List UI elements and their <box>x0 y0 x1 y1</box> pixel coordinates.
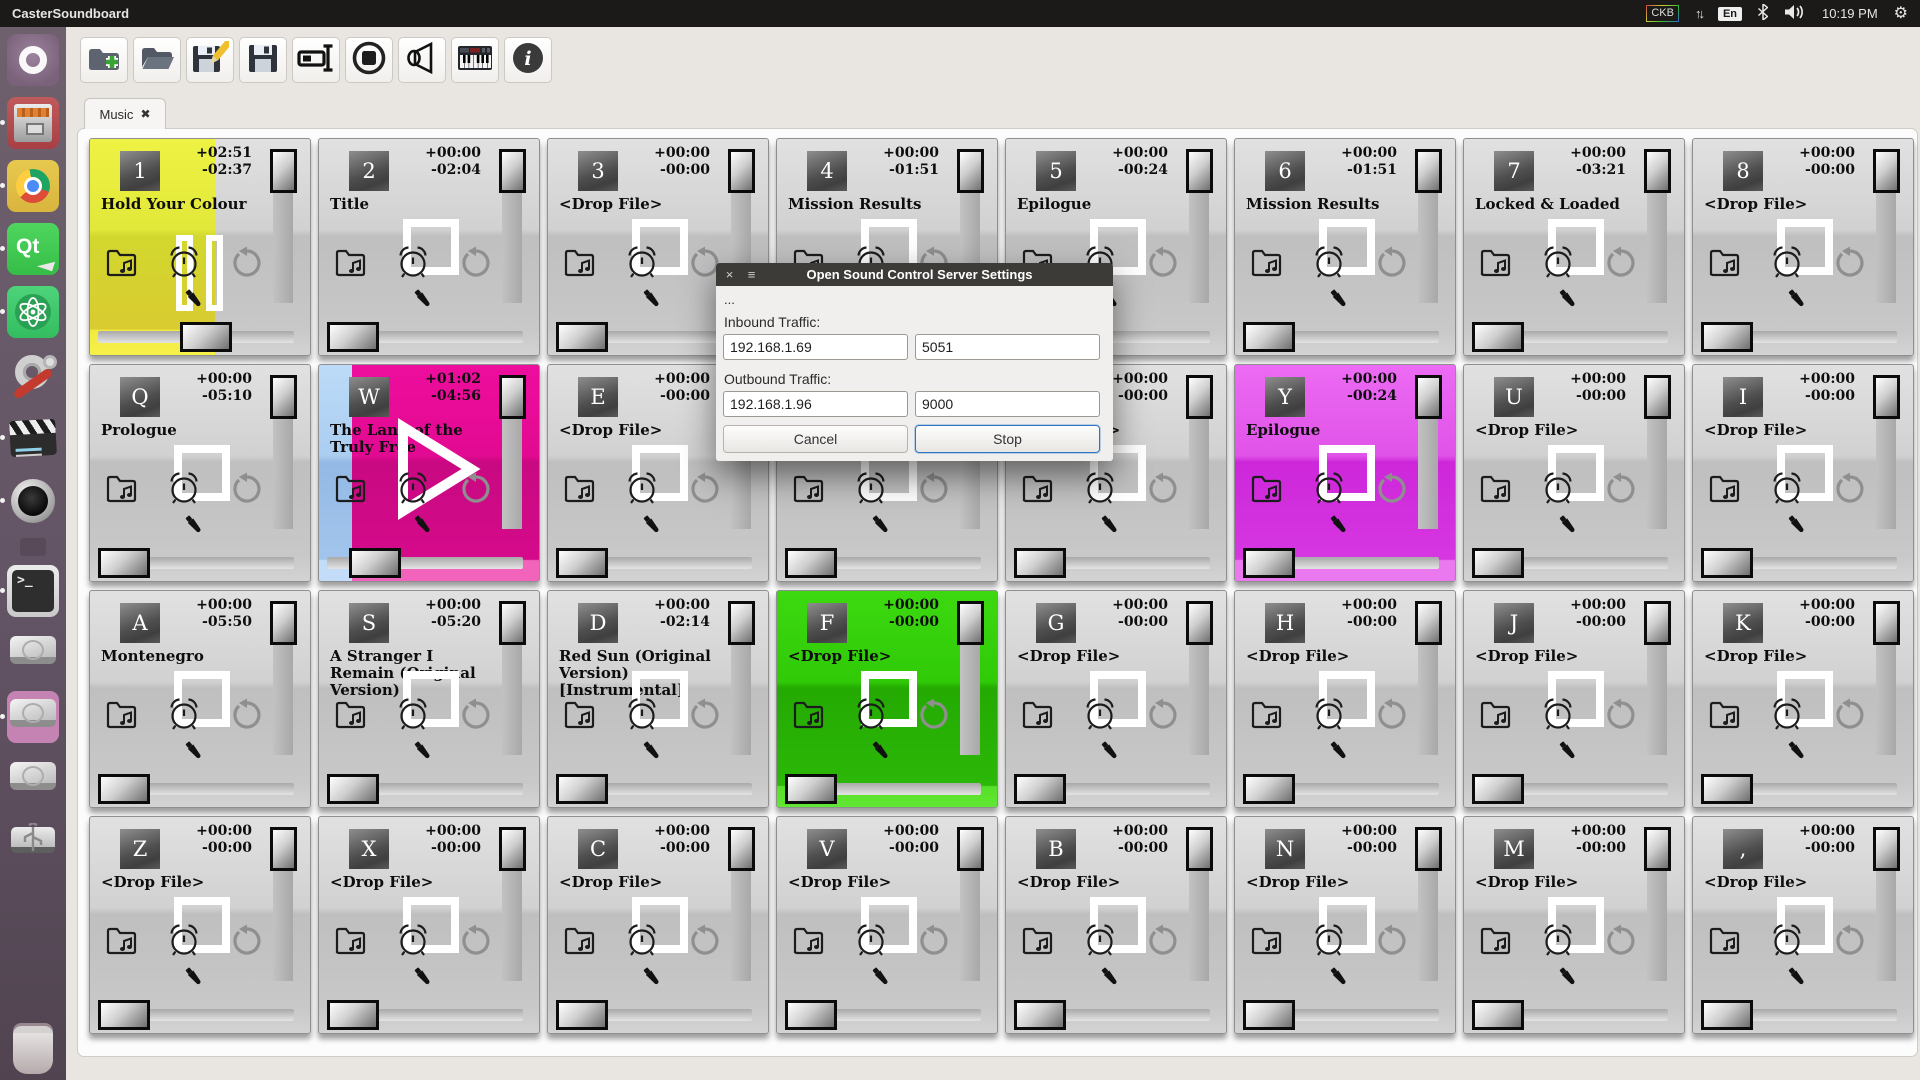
unity-launcher: Qt>_ <box>0 27 66 1080</box>
loop-icon[interactable] <box>1831 923 1867 963</box>
open-audio-file-icon[interactable] <box>1707 245 1743 283</box>
pad-time: +00:00-01:51 <box>1341 145 1397 179</box>
volume-slider-handle[interactable] <box>1644 149 1671 193</box>
pad-time: +00:00-00:00 <box>1570 597 1626 631</box>
launcher-terminal-icon[interactable]: >_ <box>7 565 59 617</box>
color-picker-icon[interactable] <box>411 287 437 317</box>
sound-pad[interactable]: Y +00:00-00:24 Epilogue <box>1234 364 1456 582</box>
loop-icon[interactable] <box>686 923 722 963</box>
tab-music[interactable]: Music ✖ <box>84 98 166 129</box>
timer-clock-icon[interactable] <box>164 919 204 963</box>
seek-slider-handle[interactable] <box>1701 1000 1753 1030</box>
pad-key-label: Y <box>1265 377 1305 417</box>
volume-slider-handle[interactable] <box>1415 601 1442 645</box>
loop-icon[interactable] <box>915 471 951 511</box>
volume-slider-handle[interactable] <box>1186 827 1213 871</box>
loop-icon[interactable] <box>1831 471 1867 511</box>
timer-clock-icon[interactable] <box>622 467 662 511</box>
launcher-system-tools-icon[interactable] <box>7 349 59 401</box>
volume-slider-handle[interactable] <box>1873 149 1900 193</box>
color-picker-icon[interactable] <box>182 965 208 995</box>
loop-icon[interactable] <box>1602 923 1638 963</box>
seek-slider-handle[interactable] <box>1014 548 1066 578</box>
loop-icon[interactable] <box>228 697 264 737</box>
loop-icon[interactable] <box>1373 245 1409 285</box>
loop-icon[interactable] <box>1602 471 1638 511</box>
volume-slider-handle[interactable] <box>1186 375 1213 419</box>
loop-icon[interactable] <box>1831 245 1867 285</box>
timer-clock-icon[interactable] <box>1538 241 1578 285</box>
pad-track-title: <Drop File> <box>559 422 719 439</box>
color-picker-icon[interactable] <box>1556 513 1582 543</box>
timer-clock-icon[interactable] <box>1767 919 1807 963</box>
volume-slider-handle[interactable] <box>1644 827 1671 871</box>
pad-time: +00:00-00:00 <box>883 823 939 857</box>
timer-clock-icon[interactable] <box>851 693 891 737</box>
open-audio-file-icon[interactable] <box>333 471 369 509</box>
launcher-mini-indicator-icon[interactable] <box>20 538 46 556</box>
pad-key-label: G <box>1036 603 1076 643</box>
launcher-video-editor-icon[interactable] <box>7 412 59 464</box>
new-soundboard-icon <box>87 43 121 78</box>
pad-track-title: <Drop File> <box>1475 648 1635 665</box>
color-picker-icon[interactable] <box>869 739 895 769</box>
sound-pad[interactable]: D +00:00-02:14 Red Sun (Original Version… <box>547 590 769 808</box>
save-soundboard-button[interactable] <box>239 37 287 83</box>
seek-slider-handle[interactable] <box>1243 322 1295 352</box>
volume-slider-handle[interactable] <box>499 827 526 871</box>
seek-slider-handle[interactable] <box>785 1000 837 1030</box>
color-picker-icon[interactable] <box>1327 287 1353 317</box>
timer-clock-icon[interactable] <box>1538 919 1578 963</box>
pad-track-title: <Drop File> <box>1704 196 1864 213</box>
open-audio-file-icon[interactable] <box>791 471 827 509</box>
open-audio-file-icon[interactable] <box>1249 245 1285 283</box>
sound-pad[interactable]: W +01:02-04:56 The Land of the Truly Fre… <box>318 364 540 582</box>
open-audio-file-icon[interactable] <box>104 471 140 509</box>
sound-pad[interactable]: B +00:00-00:00 <Drop File> <box>1005 816 1227 1034</box>
open-audio-file-icon[interactable] <box>333 697 369 735</box>
pad-key-label: Z <box>120 829 160 869</box>
sound-pad[interactable]: N +00:00-00:00 <Drop File> <box>1234 816 1456 1034</box>
seek-slider-handle[interactable] <box>98 774 150 804</box>
loop-icon[interactable] <box>1144 245 1180 285</box>
open-audio-file-icon[interactable] <box>1249 471 1285 509</box>
seek-slider-handle[interactable] <box>349 548 401 578</box>
color-picker-icon[interactable] <box>1098 513 1124 543</box>
open-audio-file-icon[interactable] <box>1707 697 1743 735</box>
volume-slider-handle[interactable] <box>270 601 297 645</box>
timer-clock-icon[interactable] <box>164 467 204 511</box>
color-picker-icon[interactable] <box>1785 287 1811 317</box>
timer-clock-icon[interactable] <box>1309 919 1349 963</box>
color-picker-icon[interactable] <box>1785 513 1811 543</box>
launcher-trash-icon[interactable] <box>13 1026 53 1074</box>
timer-clock-icon[interactable] <box>1080 693 1120 737</box>
sound-pad[interactable]: V +00:00-00:00 <Drop File> <box>776 816 998 1034</box>
loop-icon[interactable] <box>915 923 951 963</box>
open-audio-file-icon[interactable] <box>333 245 369 283</box>
volume-slider-handle[interactable] <box>1873 601 1900 645</box>
seek-slider-handle[interactable] <box>1243 548 1295 578</box>
color-picker-icon[interactable] <box>182 513 208 543</box>
timer-clock-icon[interactable] <box>1767 241 1807 285</box>
seek-slider-handle[interactable] <box>98 1000 150 1030</box>
timer-clock-icon[interactable] <box>1767 467 1807 511</box>
color-picker-icon[interactable] <box>182 287 208 317</box>
volume-slider-handle[interactable] <box>1873 827 1900 871</box>
volume-slider-handle[interactable] <box>957 601 984 645</box>
pad-key-label: J <box>1494 603 1534 643</box>
bluetooth-icon[interactable] <box>1758 4 1768 23</box>
pad-track-title: <Drop File> <box>1704 422 1864 439</box>
loop-icon[interactable] <box>686 697 722 737</box>
color-picker-icon[interactable] <box>1785 965 1811 995</box>
open-audio-file-icon[interactable] <box>791 697 827 735</box>
volume-slider-handle[interactable] <box>957 149 984 193</box>
open-audio-file-icon[interactable] <box>1478 245 1514 283</box>
seek-slider-handle[interactable] <box>556 1000 608 1030</box>
stop-all-sounds-icon <box>351 40 387 81</box>
timer-clock-icon[interactable] <box>393 467 433 511</box>
pad-key-label: 4 <box>807 151 847 191</box>
stop-button[interactable]: Stop <box>915 425 1100 453</box>
pad-track-title: Montenegro <box>101 648 261 665</box>
loop-icon[interactable] <box>228 471 264 511</box>
volume-slider-handle[interactable] <box>1415 149 1442 193</box>
volume-slider-handle[interactable] <box>499 149 526 193</box>
timer-clock-icon[interactable] <box>164 241 204 285</box>
open-audio-file-icon[interactable] <box>562 923 598 961</box>
open-audio-file-icon[interactable] <box>1020 697 1056 735</box>
keyboard-layout-indicator[interactable]: En <box>1718 7 1742 21</box>
color-picker-icon[interactable] <box>869 965 895 995</box>
pad-track-title: Title <box>330 196 490 213</box>
timer-clock-icon[interactable] <box>1309 467 1349 511</box>
color-picker-icon[interactable] <box>1785 739 1811 769</box>
indicator-tray: CKB ↑↓ En 10:19 PM ⚙ <box>1646 4 1908 23</box>
launcher-hard-drive-1-icon[interactable] <box>7 628 59 680</box>
timer-clock-icon[interactable] <box>1538 467 1578 511</box>
new-soundboard-button[interactable] <box>80 37 128 83</box>
launcher-qt-creator-icon[interactable]: Qt <box>7 223 59 275</box>
timer-clock-icon[interactable] <box>622 693 662 737</box>
rename-board-icon <box>297 43 335 78</box>
pad-key-label: 1 <box>120 151 160 191</box>
pad-track-title: Epilogue <box>1017 196 1177 213</box>
pad-key-label: , <box>1723 829 1763 869</box>
seek-slider-handle[interactable] <box>1472 774 1524 804</box>
pad-track-title: <Drop File> <box>1246 874 1406 891</box>
volume-slider-handle[interactable] <box>1186 149 1213 193</box>
rename-board-button[interactable] <box>292 37 340 83</box>
open-audio-file-icon[interactable] <box>1478 471 1514 509</box>
pad-key-label: U <box>1494 377 1534 417</box>
color-picker-icon[interactable] <box>411 513 437 543</box>
loop-icon[interactable] <box>1144 923 1180 963</box>
volume-slider-handle[interactable] <box>1644 601 1671 645</box>
dialog-menu-icon[interactable]: ≡ <box>743 267 760 282</box>
pad-track-title: <Drop File> <box>559 196 719 213</box>
volume-slider-handle[interactable] <box>728 827 755 871</box>
volume-slider-handle[interactable] <box>728 601 755 645</box>
clock[interactable]: 10:19 PM <box>1822 6 1878 21</box>
color-picker-icon[interactable] <box>1327 739 1353 769</box>
network-updown-icon[interactable]: ↑↓ <box>1695 6 1702 21</box>
seek-slider-handle[interactable] <box>327 774 379 804</box>
casters-soundboard-screen: CasterSoundboard CKB ↑↓ En 10:19 PM ⚙ Qt… <box>0 0 1920 1080</box>
open-audio-file-icon[interactable] <box>562 245 598 283</box>
seek-slider-handle[interactable] <box>98 548 150 578</box>
timer-clock-icon[interactable] <box>393 693 433 737</box>
launcher-ubuntu-dash-icon[interactable] <box>7 34 59 86</box>
sound-pad[interactable]: A +00:00-05:50 Montenegro <box>89 590 311 808</box>
open-audio-file-icon[interactable] <box>1020 471 1056 509</box>
timer-clock-icon[interactable] <box>1309 693 1349 737</box>
loop-icon[interactable] <box>1373 923 1409 963</box>
color-picker-icon[interactable] <box>182 739 208 769</box>
loop-icon[interactable] <box>1373 697 1409 737</box>
about-info-button[interactable]: i <box>504 37 552 83</box>
loop-icon[interactable] <box>1602 697 1638 737</box>
pad-time: +00:00-00:00 <box>1570 823 1626 857</box>
sound-pad[interactable]: G +00:00-00:00 <Drop File> <box>1005 590 1227 808</box>
midi-keyboard-button[interactable] <box>451 37 499 83</box>
timer-clock-icon[interactable] <box>622 241 662 285</box>
sound-pad[interactable]: , +00:00-00:00 <Drop File> <box>1692 816 1914 1034</box>
loop-icon[interactable] <box>915 697 951 737</box>
timer-clock-icon[interactable] <box>393 241 433 285</box>
stop-all-sounds-button[interactable] <box>345 37 393 83</box>
sound-pad[interactable]: S +00:00-05:20 A Stranger I Remain (Orig… <box>318 590 540 808</box>
volume-slider-handle[interactable] <box>499 375 526 419</box>
seek-slider-handle[interactable] <box>1243 774 1295 804</box>
sound-pad[interactable]: Z +00:00-00:00 <Drop File> <box>89 816 311 1034</box>
loop-icon[interactable] <box>228 245 264 285</box>
tab-close-icon[interactable]: ✖ <box>140 107 150 121</box>
seek-slider-handle[interactable] <box>1472 548 1524 578</box>
audio-output-button[interactable] <box>398 37 446 83</box>
sound-pad[interactable]: K +00:00-00:00 <Drop File> <box>1692 590 1914 808</box>
color-picker-icon[interactable] <box>411 965 437 995</box>
open-audio-file-icon[interactable] <box>1707 923 1743 961</box>
inbound-port-input[interactable] <box>915 334 1100 360</box>
timer-clock-icon[interactable] <box>164 693 204 737</box>
dialog-body: ... Inbound Traffic: Outbound Traffic: C… <box>716 286 1113 461</box>
seek-slider-handle[interactable] <box>785 774 837 804</box>
timer-clock-icon[interactable] <box>851 467 891 511</box>
sound-pad[interactable]: M +00:00-00:00 <Drop File> <box>1463 816 1685 1034</box>
inbound-ip-input[interactable] <box>723 334 908 360</box>
seek-slider-handle[interactable] <box>327 322 379 352</box>
timer-clock-icon[interactable] <box>1767 693 1807 737</box>
save-soundboard-as-button[interactable] <box>186 37 234 83</box>
outbound-traffic-label: Outbound Traffic: <box>724 371 831 387</box>
pad-key-label: E <box>578 377 618 417</box>
seek-slider-handle[interactable] <box>785 548 837 578</box>
sound-pad[interactable]: 8 +00:00-00:00 <Drop File> <box>1692 138 1914 356</box>
volume-slider-handle[interactable] <box>270 375 297 419</box>
color-picker-icon[interactable] <box>411 739 437 769</box>
sound-pad[interactable]: X +00:00-00:00 <Drop File> <box>318 816 540 1034</box>
color-picker-icon[interactable] <box>1098 965 1124 995</box>
sound-pad[interactable]: 2 +00:00-02:04 Title <box>318 138 540 356</box>
open-audio-file-icon[interactable] <box>333 923 369 961</box>
sound-pad[interactable]: 1 +02:51-02:37 Hold Your Colour <box>89 138 311 356</box>
open-audio-file-icon[interactable] <box>1478 923 1514 961</box>
launcher-usb-drive-icon[interactable] <box>7 817 59 869</box>
pad-time: +02:51-02:37 <box>196 145 252 179</box>
loop-icon[interactable] <box>457 923 493 963</box>
volume-slider-handle[interactable] <box>499 601 526 645</box>
volume-slider-handle[interactable] <box>728 149 755 193</box>
pad-track-title: Locked & Loaded <box>1475 196 1635 213</box>
pad-key-label: H <box>1265 603 1305 643</box>
timer-clock-icon[interactable] <box>1080 919 1120 963</box>
timer-clock-icon[interactable] <box>622 919 662 963</box>
launcher-speaker-app-icon[interactable] <box>7 475 59 527</box>
open-audio-file-icon[interactable] <box>791 923 827 961</box>
sound-pad[interactable]: F +00:00-00:00 <Drop File> <box>776 590 998 808</box>
loop-icon[interactable] <box>1373 471 1409 511</box>
volume-slider-handle[interactable] <box>1415 375 1442 419</box>
pad-time: +00:00-00:00 <box>196 823 252 857</box>
pad-time: +00:00-00:00 <box>1112 597 1168 631</box>
color-picker-icon[interactable] <box>640 513 666 543</box>
ckb-indicator[interactable]: CKB <box>1646 5 1679 22</box>
seek-slider-handle[interactable] <box>1243 1000 1295 1030</box>
about-info-icon: i <box>511 41 545 80</box>
seek-slider-handle[interactable] <box>1014 1000 1066 1030</box>
volume-slider-handle[interactable] <box>270 827 297 871</box>
loop-icon[interactable] <box>228 923 264 963</box>
color-picker-icon[interactable] <box>1556 965 1582 995</box>
pad-time: +00:00-00:00 <box>883 597 939 631</box>
cancel-button[interactable]: Cancel <box>723 425 908 453</box>
color-picker-icon[interactable] <box>1098 739 1124 769</box>
save-soundboard-icon <box>246 42 280 79</box>
loop-icon[interactable] <box>457 697 493 737</box>
loop-icon[interactable] <box>457 471 493 511</box>
seek-slider-handle[interactable] <box>556 774 608 804</box>
outbound-port-input[interactable] <box>915 391 1100 417</box>
launcher-hard-drive-2-icon[interactable] <box>7 754 59 806</box>
pad-track-title: Mission Results <box>788 196 948 213</box>
open-audio-file-icon[interactable] <box>1478 697 1514 735</box>
sound-pad[interactable]: I +00:00-00:00 <Drop File> <box>1692 364 1914 582</box>
outbound-ip-input[interactable] <box>723 391 908 417</box>
launcher-hard-drive-mounted-icon[interactable] <box>7 691 59 743</box>
open-audio-file-icon[interactable] <box>104 245 140 283</box>
pad-track-title: <Drop File> <box>1246 648 1406 665</box>
seek-slider-handle[interactable] <box>1701 548 1753 578</box>
open-audio-file-icon[interactable] <box>1249 923 1285 961</box>
open-soundboard-button[interactable] <box>133 37 181 83</box>
seek-slider-handle[interactable] <box>180 322 232 352</box>
dialog-close-icon[interactable]: × <box>721 267 738 282</box>
volume-slider-handle[interactable] <box>957 827 984 871</box>
color-picker-icon[interactable] <box>869 513 895 543</box>
color-picker-icon[interactable] <box>1556 287 1582 317</box>
sound-pad[interactable]: U +00:00-00:00 <Drop File> <box>1463 364 1685 582</box>
open-audio-file-icon[interactable] <box>1707 471 1743 509</box>
loop-icon[interactable] <box>1602 245 1638 285</box>
volume-icon[interactable] <box>1784 4 1806 23</box>
pad-time: +00:00-00:00 <box>1341 597 1397 631</box>
timer-clock-icon[interactable] <box>1080 467 1120 511</box>
pad-key-label: 2 <box>349 151 389 191</box>
timer-clock-icon[interactable] <box>393 919 433 963</box>
open-audio-file-icon[interactable] <box>1020 923 1056 961</box>
open-audio-file-icon[interactable] <box>1249 697 1285 735</box>
pad-track-title: <Drop File> <box>559 874 719 891</box>
seek-slider-handle[interactable] <box>556 322 608 352</box>
loop-icon[interactable] <box>1144 471 1180 511</box>
open-audio-file-icon[interactable] <box>562 471 598 509</box>
color-picker-icon[interactable] <box>640 965 666 995</box>
launcher-atom-editor-icon[interactable] <box>7 286 59 338</box>
seek-slider-handle[interactable] <box>556 548 608 578</box>
loop-icon[interactable] <box>1831 697 1867 737</box>
launcher-chrome-browser-icon[interactable] <box>7 160 59 212</box>
open-audio-file-icon[interactable] <box>562 697 598 735</box>
timer-clock-icon[interactable] <box>851 919 891 963</box>
seek-slider-handle[interactable] <box>327 1000 379 1030</box>
volume-slider-handle[interactable] <box>1644 375 1671 419</box>
main-toolbar: i <box>80 37 552 83</box>
color-picker-icon[interactable] <box>640 739 666 769</box>
open-audio-file-icon[interactable] <box>104 923 140 961</box>
sound-pad[interactable]: J +00:00-00:00 <Drop File> <box>1463 590 1685 808</box>
pad-time: +00:00-03:21 <box>1570 145 1626 179</box>
timer-clock-icon[interactable] <box>1538 693 1578 737</box>
volume-slider-handle[interactable] <box>1873 375 1900 419</box>
seek-slider-handle[interactable] <box>1472 1000 1524 1030</box>
loop-icon[interactable] <box>457 245 493 285</box>
pad-track-title: <Drop File> <box>101 874 261 891</box>
color-picker-icon[interactable] <box>1556 739 1582 769</box>
seek-slider-handle[interactable] <box>1701 774 1753 804</box>
dialog-titlebar: × ≡ Open Sound Control Server Settings <box>716 263 1113 286</box>
sound-pad[interactable]: 6 +00:00-01:51 Mission Results <box>1234 138 1456 356</box>
pad-time: +00:00-00:00 <box>654 145 710 179</box>
color-picker-icon[interactable] <box>1327 513 1353 543</box>
pad-track-title: <Drop File> <box>788 874 948 891</box>
sound-pad[interactable]: Q +00:00-05:10 Prologue <box>89 364 311 582</box>
volume-slider-handle[interactable] <box>270 149 297 193</box>
pad-time: +00:00-00:00 <box>1570 371 1626 405</box>
volume-slider-handle[interactable] <box>1186 601 1213 645</box>
session-gear-icon[interactable]: ⚙ <box>1894 6 1908 22</box>
volume-slider-handle[interactable] <box>1415 827 1442 871</box>
timer-clock-icon[interactable] <box>1309 241 1349 285</box>
loop-icon[interactable] <box>686 471 722 511</box>
launcher-file-cabinet-icon[interactable] <box>7 97 59 149</box>
color-picker-icon[interactable] <box>1327 965 1353 995</box>
sound-pad[interactable]: H +00:00-00:00 <Drop File> <box>1234 590 1456 808</box>
loop-icon[interactable] <box>1144 697 1180 737</box>
seek-slider-handle[interactable] <box>1014 774 1066 804</box>
seek-slider-handle[interactable] <box>1701 322 1753 352</box>
sound-pad[interactable]: 7 +00:00-03:21 Locked & Loaded <box>1463 138 1685 356</box>
seek-slider-handle[interactable] <box>1472 322 1524 352</box>
sound-pad[interactable]: C +00:00-00:00 <Drop File> <box>547 816 769 1034</box>
open-audio-file-icon[interactable] <box>104 697 140 735</box>
color-picker-icon[interactable] <box>640 287 666 317</box>
pad-key-label: V <box>807 829 847 869</box>
pad-key-label: 6 <box>1265 151 1305 191</box>
pad-track-title: <Drop File> <box>330 874 490 891</box>
